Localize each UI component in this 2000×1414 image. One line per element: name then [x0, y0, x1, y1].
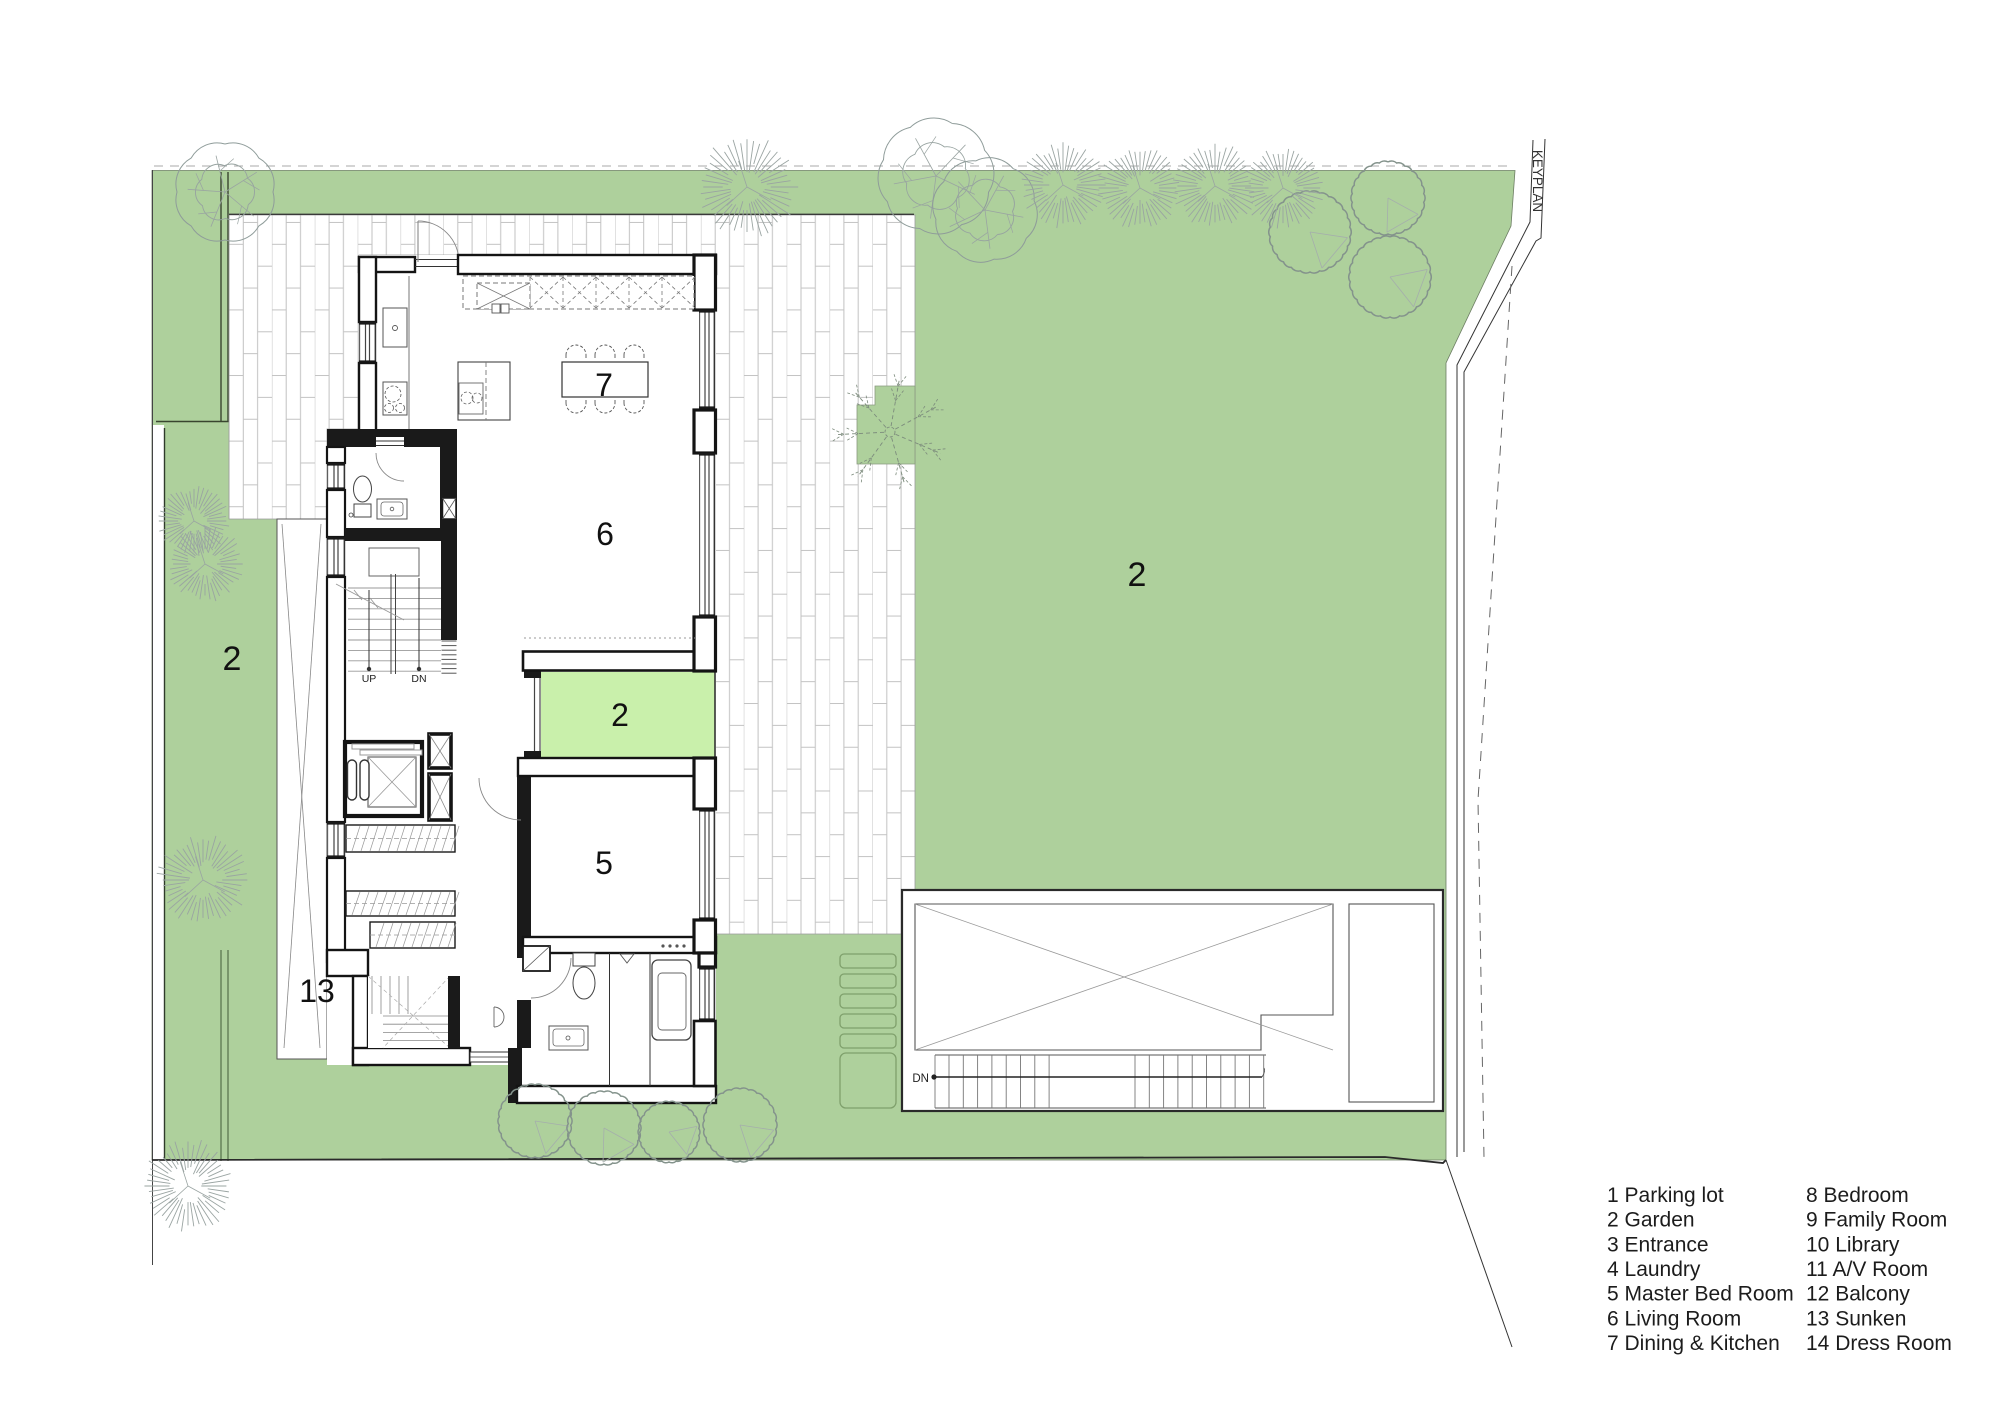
svg-text:11 A/V Room: 11 A/V Room	[1806, 1258, 1928, 1281]
svg-text:6: 6	[596, 516, 614, 552]
svg-text:UP: UP	[362, 673, 377, 685]
svg-text:5: 5	[595, 845, 613, 881]
svg-text:12 Balcony: 12 Balcony	[1806, 1283, 1910, 1306]
svg-text:7: 7	[595, 367, 613, 403]
svg-text:5 Master Bed Room: 5 Master Bed Room	[1607, 1283, 1794, 1306]
svg-text:6 Living Room: 6 Living Room	[1607, 1307, 1741, 1330]
svg-text:4 Laundry: 4 Laundry	[1607, 1258, 1701, 1281]
svg-text:13: 13	[299, 973, 335, 1009]
svg-text:DN: DN	[912, 1073, 929, 1085]
svg-text:DN: DN	[411, 673, 426, 685]
svg-text:7 Dining & Kitchen: 7 Dining & Kitchen	[1607, 1332, 1780, 1355]
svg-text:1 Parking lot: 1 Parking lot	[1607, 1184, 1724, 1207]
svg-text:2: 2	[1128, 556, 1147, 594]
svg-text:9 Family Room: 9 Family Room	[1806, 1209, 1947, 1232]
svg-text:13 Sunken: 13 Sunken	[1806, 1307, 1906, 1330]
svg-text:14 Dress Room: 14 Dress Room	[1806, 1332, 1952, 1355]
svg-text:3 Entrance: 3 Entrance	[1607, 1233, 1709, 1256]
svg-text:2: 2	[611, 697, 629, 733]
svg-text:KEYPLAN: KEYPLAN	[1530, 150, 1545, 212]
svg-text:8 Bedroom: 8 Bedroom	[1806, 1184, 1909, 1207]
svg-text:2: 2	[223, 640, 242, 678]
svg-text:2 Garden: 2 Garden	[1607, 1209, 1695, 1232]
svg-text:10 Library: 10 Library	[1806, 1233, 1900, 1256]
